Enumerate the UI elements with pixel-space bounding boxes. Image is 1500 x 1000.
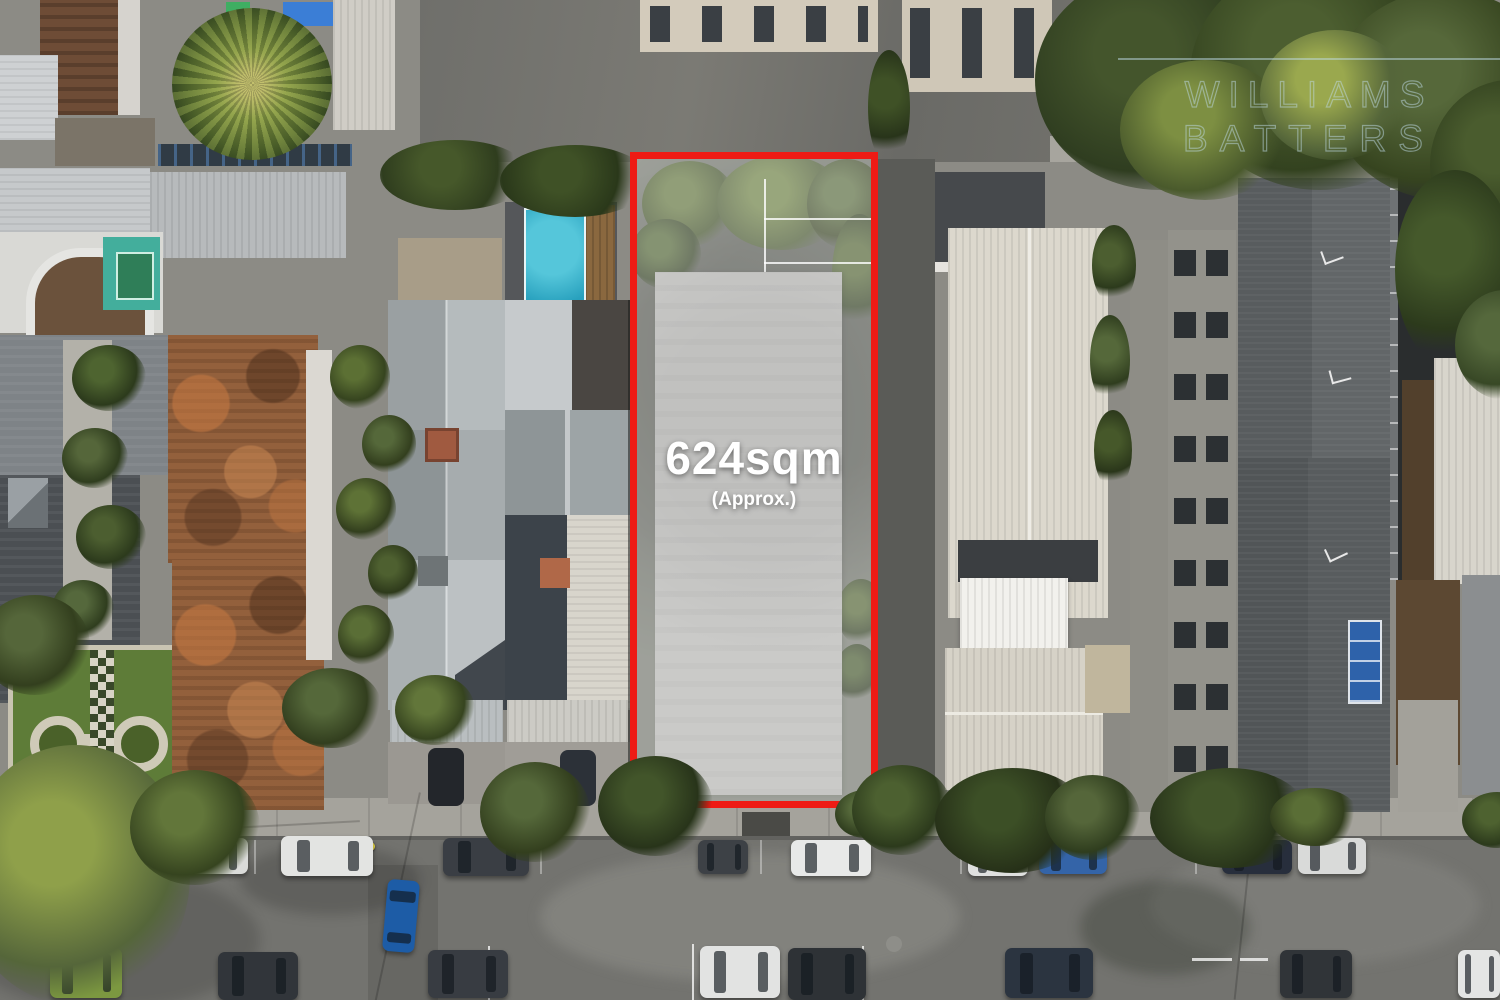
watermark-rule	[1118, 58, 1500, 60]
driveway-crossover	[742, 812, 790, 836]
watermark-line2: BATTERS	[1118, 120, 1500, 157]
chimney-terracotta	[540, 558, 570, 588]
warehouse-roof-lower	[945, 648, 1103, 790]
parking-bay-line	[254, 840, 256, 874]
terrace-roof-dark	[505, 515, 567, 710]
terrace-roof	[388, 300, 505, 430]
solar-panels	[1348, 620, 1382, 704]
tree-canopy	[336, 478, 396, 540]
terrace-roof-dark-slope	[572, 300, 630, 410]
parking-bay-line	[105, 840, 107, 874]
chimney-terracotta	[425, 428, 459, 462]
parking-bay-line	[862, 946, 864, 1000]
site-area-value: 624sqm	[637, 431, 871, 485]
rear-deck	[55, 118, 155, 166]
garden-statue	[70, 602, 80, 618]
site-area-qualifier: (Approx.)	[637, 489, 871, 511]
parked-car-driveway	[560, 750, 596, 806]
metal-roof-small	[0, 55, 58, 140]
grey-roof-right	[1462, 575, 1500, 795]
courtyard-dark	[958, 540, 1098, 582]
tree-canopy	[338, 605, 394, 665]
site-area-label: 624sqm (Approx.)	[637, 431, 871, 511]
apartment-balcony-strip	[118, 0, 140, 115]
terracotta-roof-lower	[172, 560, 324, 810]
chimney-grey	[418, 556, 448, 586]
parking-bay-line	[692, 944, 694, 1000]
side-laneway	[871, 159, 935, 809]
roof-ridge	[945, 712, 1103, 715]
parking-bay-line	[760, 840, 762, 874]
cream-terrace-roof	[333, 0, 395, 130]
pedestrian-hi-vis	[366, 842, 375, 851]
parking-bay-line	[540, 840, 542, 874]
garden-circle-bed	[30, 716, 86, 772]
terracotta-roof-upper	[168, 335, 318, 563]
facade-windows	[1174, 250, 1196, 790]
dark-roof-facet	[1312, 178, 1390, 458]
aerial-photo: 624sqm (Approx.) WILLIAMS BATTERS	[0, 0, 1500, 1000]
parking-bay-line	[1195, 840, 1197, 874]
watermark-line1: WILLIAMS	[1118, 76, 1500, 113]
apartment-windows	[910, 8, 1044, 78]
road-marking	[1240, 958, 1268, 961]
garden-circle-bed	[112, 716, 168, 772]
checkered-path	[90, 650, 114, 810]
site-interior: 624sqm (Approx.)	[637, 159, 871, 801]
white-awning	[960, 578, 1068, 648]
metal-roof-long	[0, 168, 150, 232]
veranda-roof	[390, 700, 503, 744]
white-wall-strip	[306, 350, 332, 660]
white-roof-right	[1434, 358, 1500, 584]
palm-tree	[172, 8, 332, 160]
tennis-court-inner	[116, 252, 154, 300]
parked-car-driveway	[428, 748, 464, 806]
manhole-cover	[886, 936, 902, 952]
site-outline: 624sqm (Approx.)	[630, 152, 878, 808]
apartment-windows	[650, 6, 868, 42]
agency-watermark: WILLIAMS BATTERS	[1118, 58, 1500, 157]
terrace-roof	[505, 410, 630, 515]
pavilion-roof	[8, 478, 48, 528]
paving-right	[1398, 700, 1458, 812]
courtyard-paving	[63, 340, 112, 640]
dark-roof-facet	[1238, 458, 1308, 812]
road-patch	[540, 852, 960, 982]
veranda-roof	[507, 700, 628, 742]
facade-windows	[1206, 250, 1228, 790]
terrace-roof-cream	[567, 515, 630, 710]
parking-bay-line	[488, 946, 490, 1000]
tree-canopy	[330, 345, 390, 409]
road-marking	[1192, 958, 1232, 961]
parking-bay-line	[960, 840, 962, 874]
metal-roof-wide	[150, 172, 346, 258]
